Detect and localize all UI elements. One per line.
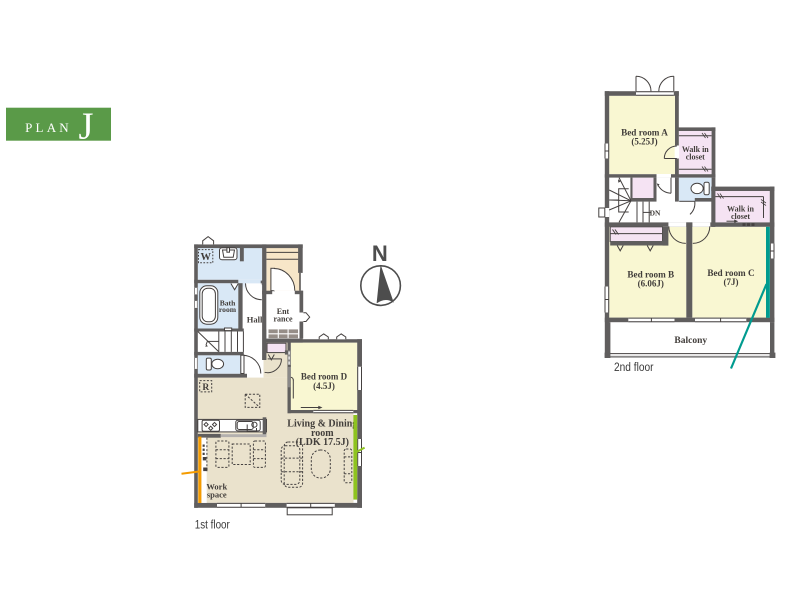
svg-text:N: N: [372, 241, 388, 266]
svg-text:room: room: [219, 305, 237, 314]
svg-text:PLAN: PLAN: [25, 120, 72, 135]
svg-text:rance: rance: [273, 315, 293, 324]
svg-text:closet: closet: [731, 212, 750, 221]
svg-text:Balcony: Balcony: [674, 336, 707, 346]
svg-text:closet: closet: [686, 153, 705, 162]
svg-text:J: J: [79, 105, 94, 147]
svg-text:Hall: Hall: [247, 315, 263, 325]
svg-text:space: space: [207, 490, 227, 500]
svg-text:2nd floor: 2nd floor: [614, 362, 654, 374]
svg-text:(6.06J): (6.06J): [638, 279, 664, 289]
svg-text:W: W: [200, 252, 211, 263]
svg-text:R: R: [202, 383, 209, 393]
svg-text:1st floor: 1st floor: [195, 520, 230, 532]
svg-text:DN: DN: [650, 208, 661, 217]
svg-text:(5.25J): (5.25J): [631, 137, 657, 147]
svg-text:(7J): (7J): [724, 277, 739, 287]
svg-text:(LDK 17.5J): (LDK 17.5J): [296, 437, 349, 448]
svg-text:(4.5J): (4.5J): [313, 381, 335, 391]
